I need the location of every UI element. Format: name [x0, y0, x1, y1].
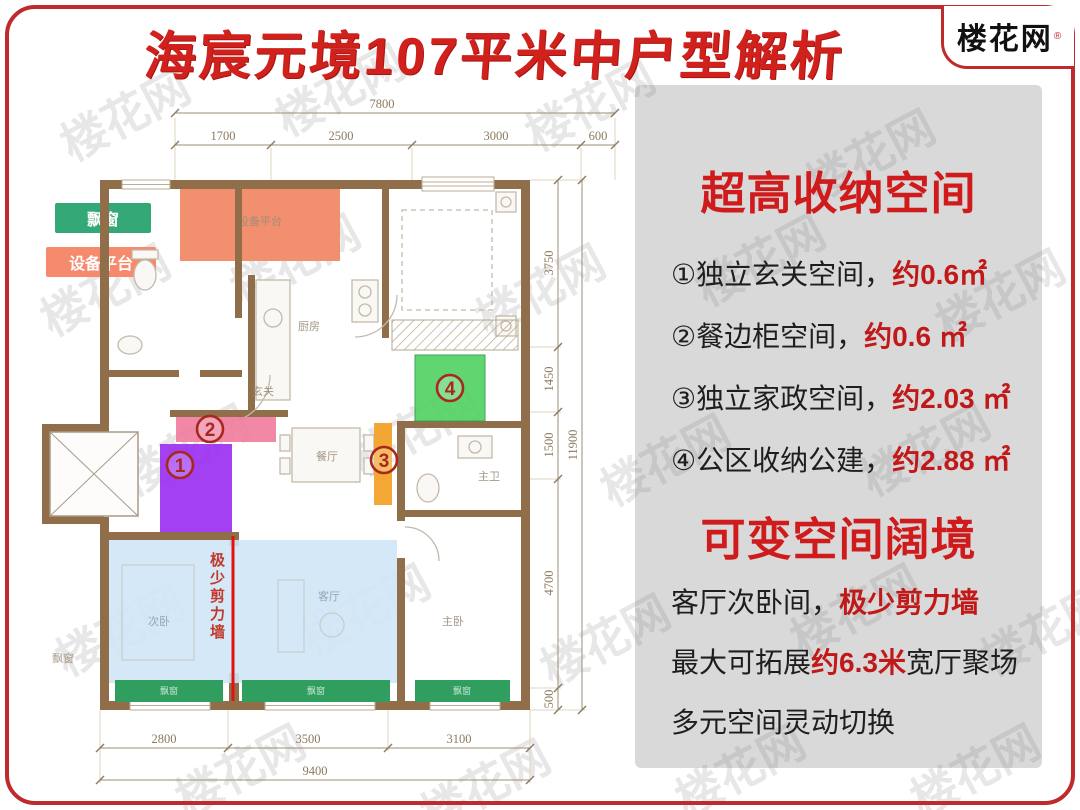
dim-right-overall: 11900	[566, 430, 580, 461]
logo-box: 楼花网 ®	[941, 6, 1074, 69]
flex-line-1-em: 极少剪力墙	[839, 587, 979, 618]
dim-top-seg-2: 2500	[329, 129, 354, 143]
poster: 楼花网楼花网楼花网楼花网楼花网楼花网楼花网楼花网楼花网楼花网楼花网楼花网楼花网楼…	[0, 0, 1080, 810]
marker-2-num: 2	[205, 420, 216, 441]
storage-item-1: ①独立玄关空间，约0.6㎡	[671, 253, 1031, 293]
dim-top-seg-3: 3000	[484, 129, 509, 143]
storage-item-2: ②餐边柜空间，约0.6 ㎡	[671, 315, 1031, 355]
info-panel: 超高收纳空间 ①独立玄关空间，约0.6㎡ ②餐边柜空间，约0.6 ㎡ ③独立家政…	[635, 85, 1042, 768]
elevator-shaft	[50, 432, 138, 516]
bay-window-label-right: 飘窗	[453, 685, 471, 696]
flex-line-2: 最大可拓展约6.3米宽厅聚场	[671, 641, 1031, 681]
flex-line-2-em: 约6.3米	[811, 647, 906, 678]
dim-bottom-overall: 9400	[303, 764, 328, 778]
shear-wall-note: 极少剪力墙	[206, 552, 227, 642]
dim-bottom-seg-3: 3100	[447, 732, 472, 746]
label-kitchen: 厨房	[298, 320, 320, 333]
dim-bottom-seg-1: 2800	[152, 732, 177, 746]
dim-top-seg-4: 600	[589, 129, 608, 143]
label-left-bay-window: 飘窗	[52, 651, 74, 665]
logo-registered-mark: ®	[1054, 31, 1061, 42]
label-dining: 餐厅	[316, 449, 338, 463]
dim-top-seg-1: 1700	[211, 129, 236, 143]
logo-text: 楼花网	[957, 14, 1053, 58]
label-second-bed: 次卧	[148, 614, 170, 628]
marker-1-num: 1	[175, 456, 186, 477]
bay-window-label-left: 飘窗	[160, 685, 178, 696]
storage-section-title: 超高收纳空间	[635, 157, 1042, 222]
flex-section-title: 可变空间阔境	[635, 503, 1042, 568]
label-master-bed: 主卧	[442, 615, 464, 628]
zone-flexible-living	[109, 540, 397, 683]
storage-item-4-text: ④公区收纳公建，	[671, 445, 892, 476]
storage-item-3-value: 约2.03 ㎡	[892, 383, 1010, 414]
marker-4-num: 4	[445, 379, 456, 400]
dim-bottom-seg-2: 3500	[296, 732, 321, 746]
storage-item-1-text: ①独立玄关空间，	[671, 259, 892, 290]
page-title: 海宸元境107平米中户型解析	[67, 14, 922, 89]
storage-item-1-value: 约0.6㎡	[892, 259, 987, 290]
flex-line-2-pre: 最大可拓展	[671, 647, 811, 678]
label-entry: 玄关	[252, 384, 274, 398]
equipment-platform-label: 设备平台	[238, 214, 282, 228]
storage-item-2-value: 约0.6 ㎡	[864, 321, 967, 352]
marker-3-num: 3	[379, 451, 390, 472]
zone-2-sideboard	[176, 417, 276, 442]
storage-item-3-text: ③独立家政空间，	[671, 383, 892, 414]
label-master-bath: 主卫	[478, 470, 500, 483]
flex-line-3: 多元空间灵动切换	[671, 701, 1031, 741]
bay-windows: 飘窗 飘窗 飘窗	[115, 680, 510, 702]
dim-right-seg-1: 3750	[542, 251, 556, 276]
storage-item-4-value: 约2.88 ㎡	[892, 445, 1010, 476]
flex-line-1: 客厅次卧间，极少剪力墙	[671, 581, 1031, 621]
storage-item-3: ③独立家政空间，约2.03 ㎡	[671, 377, 1031, 417]
bay-window-label-center: 飘窗	[307, 685, 325, 696]
dim-right-seg-5: 500	[542, 690, 556, 709]
storage-item-2-text: ②餐边柜空间，	[671, 321, 864, 352]
storage-item-4: ④公区收纳公建，约2.88 ㎡	[671, 439, 1031, 479]
dim-right-seg-2: 1450	[542, 367, 556, 392]
flex-line-3-pre: 多元空间灵动切换	[671, 707, 895, 738]
dim-top-overall: 7800	[370, 97, 395, 111]
flex-line-1-pre: 客厅次卧间，	[671, 587, 839, 618]
flex-line-2-post: 宽厅聚场	[906, 647, 1018, 678]
dim-right-seg-4: 4700	[542, 571, 556, 596]
dim-right-seg-3: 1500	[542, 433, 556, 458]
floor-plan: 7800 1700 2500 3000 600 2800 3500 3100 9…	[30, 80, 630, 795]
label-living: 客厅	[318, 589, 340, 603]
